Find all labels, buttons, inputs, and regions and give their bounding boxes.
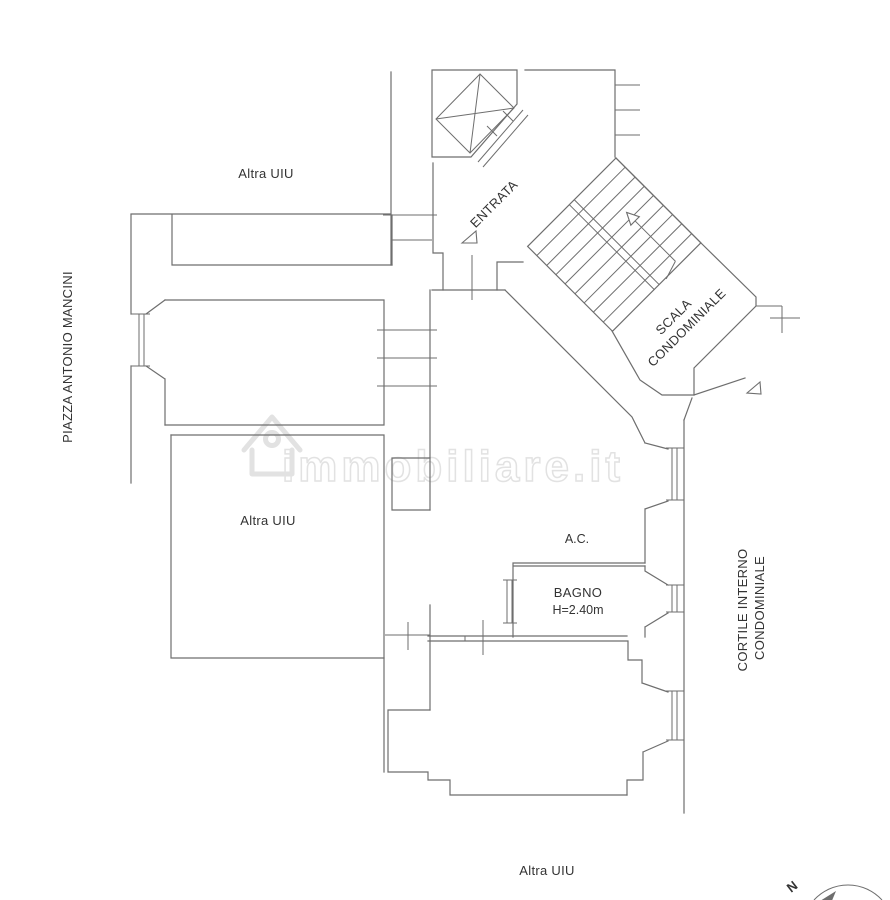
entrata-label: ENTRATA xyxy=(467,177,521,231)
watermark: immobiliare.it xyxy=(244,417,624,491)
walls-outer-left xyxy=(131,72,437,483)
labels: PIAZZA ANTONIO MANCINI Altra UIU Altra U… xyxy=(60,166,767,878)
scala-door-icon xyxy=(747,382,761,394)
walls-main-room xyxy=(430,290,684,710)
watermark-text: immobiliare.it xyxy=(282,442,624,491)
street-label: PIAZZA ANTONIO MANCINI xyxy=(60,271,75,443)
ac-label: A.C. xyxy=(565,532,589,546)
walls-scala-room xyxy=(612,158,800,420)
floor-plan-svg: immobiliare.it xyxy=(0,0,890,900)
walls-middle-rooms xyxy=(131,300,437,772)
cortile-label: CORTILE INTERNO CONDOMINIALE xyxy=(735,545,767,672)
walls-bagno xyxy=(503,563,684,637)
walls-entrance-hall xyxy=(432,70,640,300)
entrance-door-icon xyxy=(462,231,477,243)
altra-uiu-top-label: Altra UIU xyxy=(238,166,293,181)
floor-plan-page: immobiliare.it xyxy=(0,0,890,900)
altra-uiu-middle-label: Altra UIU xyxy=(240,513,295,528)
svg-text:SCALA CONDOMINIALE: SCALA CONDOMINIALE xyxy=(632,273,728,369)
bagno-height-label: H=2.40m xyxy=(552,603,603,617)
compass-north-label: N xyxy=(784,878,801,896)
elevator-icon xyxy=(432,70,528,167)
compass-icon: N xyxy=(784,878,882,900)
svg-text:CORTILE INTERNO CONDOM: CORTILE INTERNO CONDOMINIALE xyxy=(735,545,767,672)
altra-uiu-bottom-label: Altra UIU xyxy=(519,863,574,878)
bagno-label: BAGNO xyxy=(554,585,602,600)
scala-label: SCALA CONDOMINIALE xyxy=(632,273,728,369)
